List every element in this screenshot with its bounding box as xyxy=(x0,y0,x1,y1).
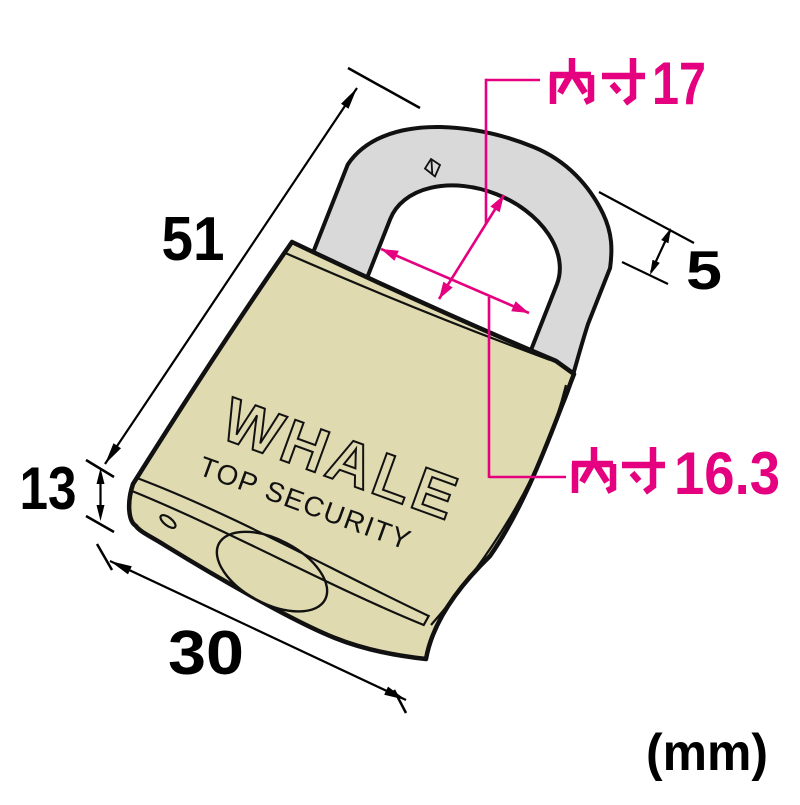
svg-text:(mm): (mm) xyxy=(646,724,768,782)
svg-text:13: 13 xyxy=(20,455,77,522)
svg-text:5: 5 xyxy=(686,239,722,301)
svg-text:16.3: 16.3 xyxy=(674,440,780,507)
svg-text:51: 51 xyxy=(162,205,225,274)
svg-text:17: 17 xyxy=(652,50,706,117)
svg-text:30: 30 xyxy=(168,619,244,688)
